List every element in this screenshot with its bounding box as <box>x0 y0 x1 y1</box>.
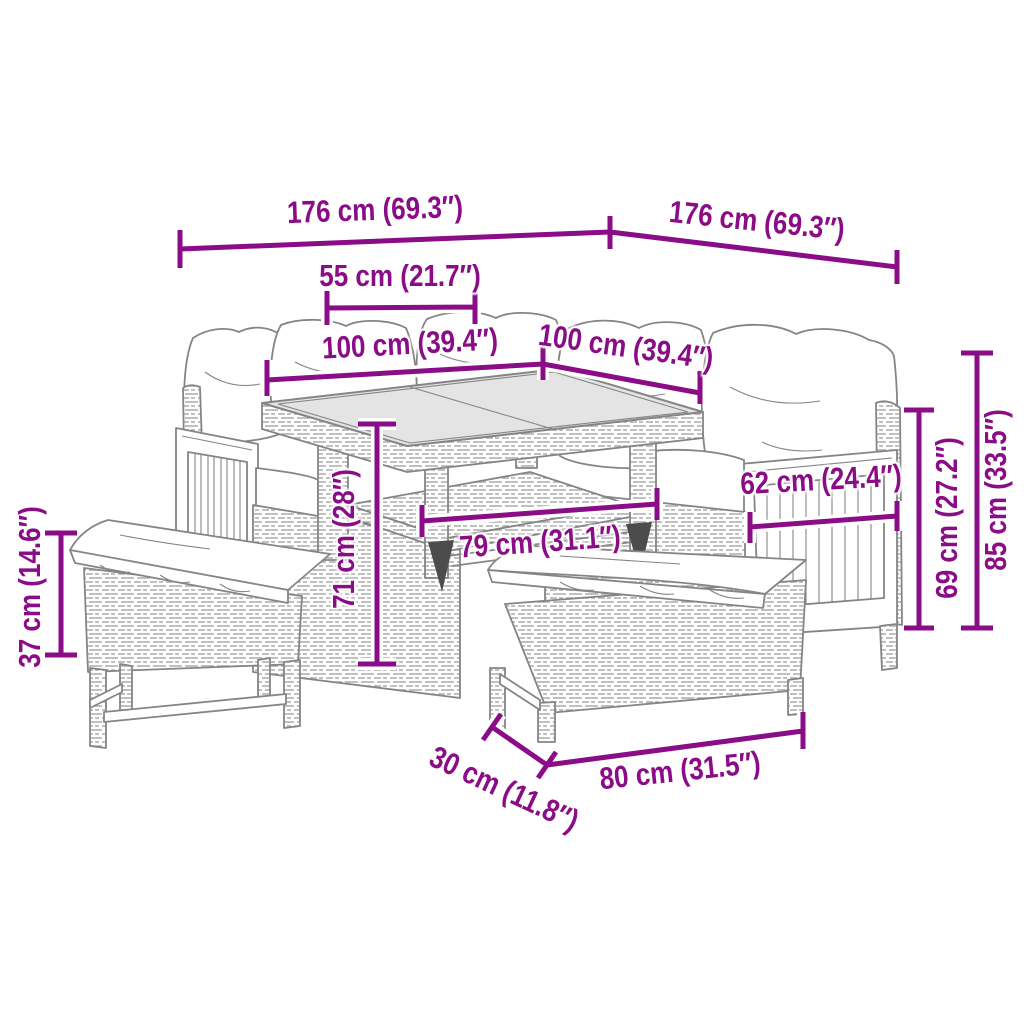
dim-label-85: 85 cm (33.5″) <box>978 409 1014 571</box>
dim-label-37: 37 cm (14.6″) <box>12 506 48 668</box>
dim-label-69: 69 cm (27.2″) <box>929 437 965 599</box>
furniture-illustration <box>0 0 1024 1024</box>
dim-label-55: 55 cm (21.7″) <box>319 258 481 294</box>
bench-front <box>488 546 806 742</box>
bench-front-leg <box>788 678 803 715</box>
bench-left <box>70 520 330 748</box>
diagram-canvas: 176 cm (69.3″) 176 cm (69.3″) 55 cm (21.… <box>0 0 1024 1024</box>
dim-label-176-left: 176 cm (69.3″) <box>286 189 463 231</box>
dim-label-71: 71 cm (28″) <box>326 469 362 609</box>
bench-left-leg <box>90 668 106 748</box>
